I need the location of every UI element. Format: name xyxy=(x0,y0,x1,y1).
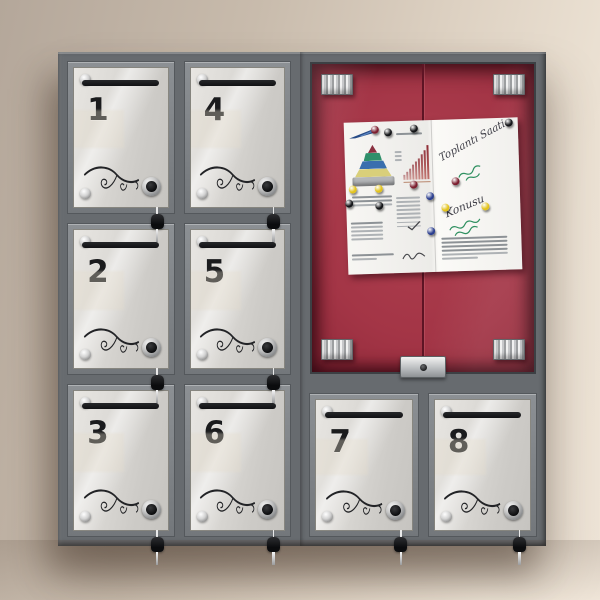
keyhole-lock[interactable] xyxy=(504,501,523,520)
hanging-key[interactable] xyxy=(267,368,281,403)
keyhole-lock[interactable] xyxy=(258,177,277,196)
hanging-key[interactable] xyxy=(267,207,281,242)
key-wire xyxy=(400,530,402,537)
printed-paragraph xyxy=(441,236,508,263)
mail-slot[interactable] xyxy=(325,412,403,418)
key-wire xyxy=(519,530,521,537)
mailbox-door-3[interactable]: 3 xyxy=(67,384,175,537)
flourish-ornament xyxy=(81,484,146,520)
mail-slot[interactable] xyxy=(82,80,159,86)
mailbox-block-bottom-right: 7 8 xyxy=(300,384,546,546)
flourish-ornament xyxy=(81,161,146,197)
mailbox-number: 8 xyxy=(448,424,469,460)
mail-slot[interactable] xyxy=(443,412,521,418)
mailbox-number: 5 xyxy=(204,254,225,290)
push-pin xyxy=(349,185,357,193)
keyhole-lock[interactable] xyxy=(386,501,405,520)
case-keyhole-lock[interactable] xyxy=(400,356,446,378)
checkmark-scribble xyxy=(407,220,421,230)
mailbox-glass: 5 xyxy=(190,229,286,370)
mailbox-door-7[interactable]: 7 xyxy=(309,393,419,537)
key-fob xyxy=(151,214,164,229)
mail-slot[interactable] xyxy=(199,80,276,86)
hanging-key[interactable] xyxy=(150,368,164,403)
corner-bracket-icon xyxy=(493,74,525,95)
mail-slot[interactable] xyxy=(199,242,276,248)
key-wire xyxy=(273,207,275,214)
mail-slot[interactable] xyxy=(82,242,159,248)
flourish-ornament xyxy=(197,323,262,359)
flourish-ornament xyxy=(197,161,262,197)
hanging-key[interactable] xyxy=(394,530,408,565)
key-blade xyxy=(156,552,159,565)
key-wire xyxy=(156,368,158,375)
mailbox-glass: 8 xyxy=(434,399,532,531)
hanging-key[interactable] xyxy=(512,530,526,565)
flourish-ornament xyxy=(197,484,262,520)
mail-slot[interactable] xyxy=(199,403,276,409)
push-pin xyxy=(383,128,391,136)
mailbox-door-5[interactable]: 5 xyxy=(184,223,292,376)
key-wire xyxy=(156,530,158,537)
mailbox-glass: 6 xyxy=(190,390,286,531)
mailbox-door-2[interactable]: 2 xyxy=(67,223,175,376)
push-pin xyxy=(409,124,417,132)
push-pin xyxy=(425,192,433,200)
key-fob xyxy=(394,537,407,552)
paragraph-lines xyxy=(352,195,392,209)
corner-bracket-icon xyxy=(493,339,525,360)
mailbox-glass: 4 xyxy=(190,67,286,208)
key-fob xyxy=(267,214,280,229)
mailbox-number: 3 xyxy=(87,415,108,451)
key-fob xyxy=(267,375,280,390)
keyhole-lock[interactable] xyxy=(142,338,161,357)
flourish-ornament xyxy=(81,323,146,359)
keyhole-lock[interactable] xyxy=(258,500,277,519)
pyramid-chart xyxy=(351,144,394,189)
key-fob xyxy=(151,375,164,390)
push-pin xyxy=(426,227,434,235)
mailbox-number: 1 xyxy=(87,92,108,128)
key-blade xyxy=(272,229,275,242)
keyhole-lock[interactable] xyxy=(142,500,161,519)
mailbox-glass: 2 xyxy=(73,229,169,370)
key-fob xyxy=(151,537,164,552)
hanging-key[interactable] xyxy=(150,530,164,565)
green-note-scribble xyxy=(456,160,488,185)
push-pin xyxy=(451,177,459,185)
signature-scribble xyxy=(402,250,426,263)
hanging-key[interactable] xyxy=(267,530,281,565)
mail-slot[interactable] xyxy=(82,403,159,409)
key-blade xyxy=(156,390,159,403)
mailbox-number: 6 xyxy=(204,415,225,451)
corner-bracket-icon xyxy=(321,74,353,95)
push-pin xyxy=(375,201,383,209)
key-wire xyxy=(156,207,158,214)
notice-display-case[interactable]: Toplantı Saati Konusu xyxy=(300,52,546,384)
key-blade xyxy=(272,390,275,403)
sheet-heading-line xyxy=(396,132,422,137)
mailbox-block-left: 1 4 xyxy=(58,52,300,546)
key-wire xyxy=(273,368,275,375)
mailbox-number: 2 xyxy=(87,254,108,290)
key-blade xyxy=(156,229,159,242)
pinned-sheet: Toplantı Saati Konusu xyxy=(344,117,523,274)
hanging-key[interactable] xyxy=(150,207,164,242)
push-pin xyxy=(375,184,383,192)
display-block-right: Toplantı Saati Konusu xyxy=(300,52,546,546)
keyhole-lock[interactable] xyxy=(142,177,161,196)
key-fob xyxy=(513,537,526,552)
mailbox-glass: 7 xyxy=(315,399,413,531)
flourish-ornament xyxy=(323,485,390,521)
push-pin xyxy=(481,202,489,210)
push-pin xyxy=(505,118,513,126)
mailbox-glass: 3 xyxy=(73,390,169,531)
key-wire xyxy=(273,530,275,537)
mailbox-door-8[interactable]: 8 xyxy=(428,393,538,537)
push-pin xyxy=(371,125,379,133)
wall-background: 1 4 xyxy=(0,0,600,600)
mailbox-number: 4 xyxy=(204,92,225,128)
mailbox-door-4[interactable]: 4 xyxy=(184,61,292,214)
keyhole-lock[interactable] xyxy=(258,338,277,357)
key-fob xyxy=(267,537,280,552)
key-blade xyxy=(272,552,275,565)
notice-board: Toplantı Saati Konusu xyxy=(310,62,536,374)
handwritten-title: Toplantı Saati xyxy=(437,118,506,165)
list-lines xyxy=(351,222,384,243)
key-blade xyxy=(400,552,403,565)
mailbox-glass: 1 xyxy=(73,67,169,208)
flourish-ornament xyxy=(441,485,508,521)
key-blade xyxy=(518,552,521,565)
corner-bracket-icon xyxy=(321,339,353,360)
footer-lines xyxy=(352,253,394,263)
mailbox-door-1[interactable]: 1 xyxy=(67,61,175,214)
mailbox-number: 7 xyxy=(329,424,350,460)
mini-bar-chart xyxy=(402,145,430,180)
pyramid-labels-right xyxy=(395,151,402,163)
mailbox-cabinet: 1 4 xyxy=(58,52,546,546)
push-pin xyxy=(409,180,417,188)
mailbox-door-6[interactable]: 6 xyxy=(184,384,292,537)
